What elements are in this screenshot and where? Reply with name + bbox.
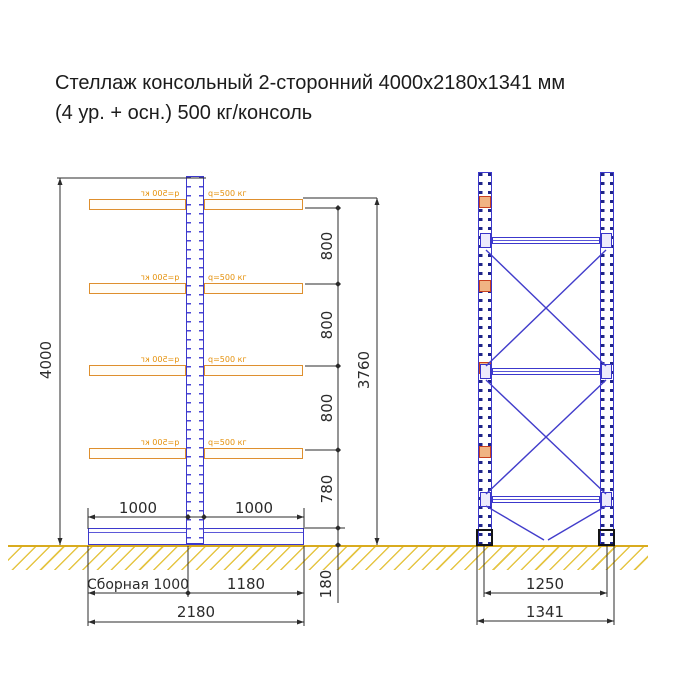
- load-label-left-level2: q=500 кг: [136, 273, 184, 282]
- console-arm-left-level3: [89, 365, 186, 376]
- beam-bracket: [480, 364, 491, 379]
- console-arm-right-level2: [204, 283, 303, 294]
- drawing-title: Стеллаж консольный 2-сторонний 4000х2180…: [55, 68, 655, 128]
- foot-plate-left: [476, 529, 493, 546]
- side-view-upright-column: [186, 176, 204, 544]
- dim-usable-height: 3760: [356, 340, 372, 400]
- tie-beam-line: [493, 371, 599, 372]
- drawing-title-line2: (4 ур. + осн.) 500 кг/консоль: [55, 98, 655, 128]
- beam-bracket: [601, 492, 612, 507]
- dim-total-width: 1341: [505, 604, 585, 620]
- dim-level-spacing-2: 800: [319, 295, 335, 355]
- load-label-left-level1: q=500 кг: [136, 189, 184, 198]
- console-arm-left-level4: [89, 448, 186, 459]
- foot-plate-right: [598, 529, 615, 546]
- drawing-title-line1: Стеллаж консольный 2-сторонний 4000х2180…: [55, 68, 655, 98]
- console-arm-right-level3: [204, 365, 303, 376]
- tie-beam-top: [492, 237, 600, 244]
- beam-bracket: [601, 364, 612, 379]
- dim-arm-right: 1000: [214, 500, 294, 516]
- beam-bracket: [480, 233, 491, 248]
- front-view-upright-right: [600, 172, 614, 545]
- dim-level-spacing-4: 780: [319, 459, 335, 519]
- dim-axis-width: 1250: [505, 576, 585, 592]
- tie-beam-bottom: [492, 496, 600, 503]
- beam-bracket: [601, 233, 612, 248]
- load-label-left-level3: q=500 кг: [136, 355, 184, 364]
- console-arm-right-level4: [204, 448, 303, 459]
- tie-beam-middle: [492, 368, 600, 375]
- dim-base-height: 180: [318, 554, 334, 614]
- load-label-left-level4: q=500 кг: [136, 438, 184, 447]
- load-label-right-level4: q=500 кг: [208, 438, 247, 447]
- console-arm-left-level1: [89, 199, 186, 210]
- dim-arm-left: 1000: [98, 500, 178, 516]
- dim-total-depth: 2180: [156, 604, 236, 620]
- load-label-right-level3: q=500 кг: [208, 355, 247, 364]
- cantilever-rack-drawing: Стеллаж консольный 2-сторонний 4000х2180…: [0, 0, 686, 686]
- dim-base-right-segment: 1180: [206, 576, 286, 592]
- load-label-right-level2: q=500 кг: [208, 273, 247, 282]
- console-mark-level2: [479, 280, 491, 292]
- console-arm-left-level2: [89, 283, 186, 294]
- dim-level-spacing-1: 800: [319, 216, 335, 276]
- dim-total-height: 4000: [38, 330, 54, 390]
- beam-bracket: [480, 492, 491, 507]
- console-mark-level4: [479, 446, 491, 458]
- tie-beam-line: [493, 499, 599, 500]
- console-arm-right-level1: [204, 199, 303, 210]
- console-mark-level1: [479, 196, 491, 208]
- dim-level-spacing-3: 800: [319, 378, 335, 438]
- load-label-right-level1: q=500 кг: [208, 189, 247, 198]
- dim-base-left-segment: Сборная 1000: [86, 577, 190, 593]
- front-view-upright-left: [478, 172, 492, 545]
- tie-beam-line: [493, 240, 599, 241]
